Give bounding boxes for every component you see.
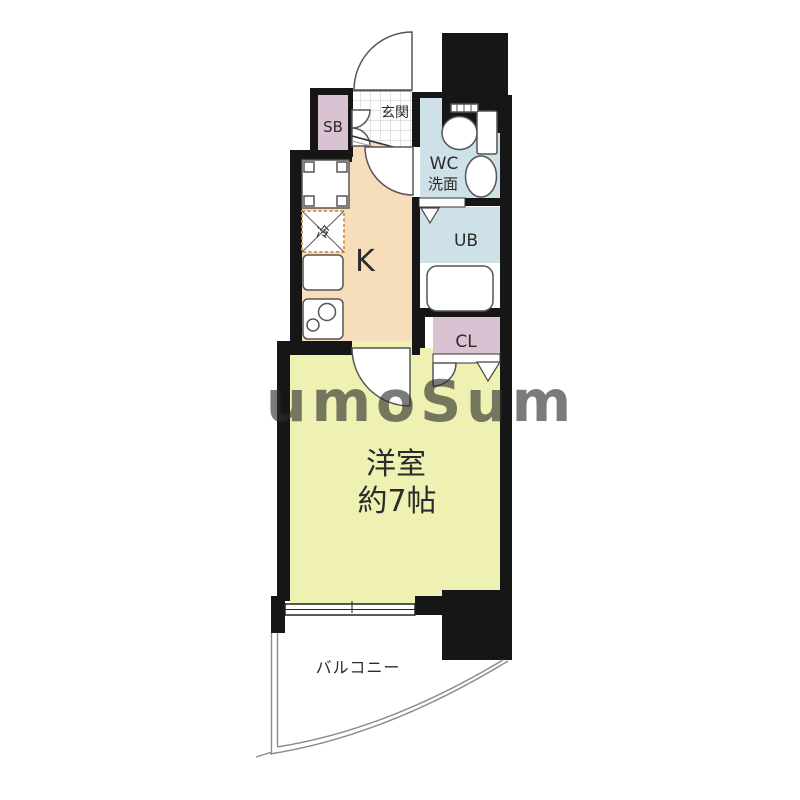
- kitchen-sink-icon: [303, 255, 343, 290]
- bathtub-icon: [427, 266, 493, 311]
- washbasin-icon: [466, 156, 497, 197]
- label-room-size: 約7帖: [357, 484, 436, 519]
- wall-segment: [417, 317, 425, 348]
- label-shoebox: SB: [323, 118, 343, 136]
- wall-segment: [271, 596, 285, 633]
- wall-segment: [500, 95, 512, 592]
- label-room-name: 洋室: [366, 447, 426, 482]
- floor-plan-svg: 玄関 SB WC 洗面 UB CL K 冷 洋室 約7帖 バルコニー umoSu…: [0, 0, 800, 800]
- toilet-icon: [442, 104, 497, 154]
- wall-segment: [412, 92, 420, 147]
- stove-icon: [303, 299, 343, 339]
- wall-segment: [277, 341, 352, 355]
- label-balcony: バルコニー: [316, 658, 401, 677]
- label-entrance: 玄関: [381, 104, 409, 121]
- label-fridge: 冷: [316, 225, 330, 241]
- label-kitchen: K: [355, 244, 376, 279]
- label-closet: CL: [455, 332, 477, 352]
- wall-notch: [425, 317, 433, 348]
- watermark-text: umoSum: [266, 369, 576, 435]
- wall-segment: [442, 590, 512, 660]
- entrance-door-arc: [354, 32, 412, 90]
- wall-segment: [290, 150, 302, 355]
- label-ub: UB: [454, 231, 478, 251]
- ub-door-panel: [419, 198, 465, 207]
- floor-plan-page: 玄関 SB WC 洗面 UB CL K 冷 洋室 約7帖 バルコニー umoSu…: [0, 0, 800, 800]
- label-washroom: 洗面: [428, 175, 458, 193]
- washing-machine-pan-icon: [302, 160, 349, 208]
- wall-segment: [415, 596, 442, 615]
- label-wc: WC: [430, 154, 459, 174]
